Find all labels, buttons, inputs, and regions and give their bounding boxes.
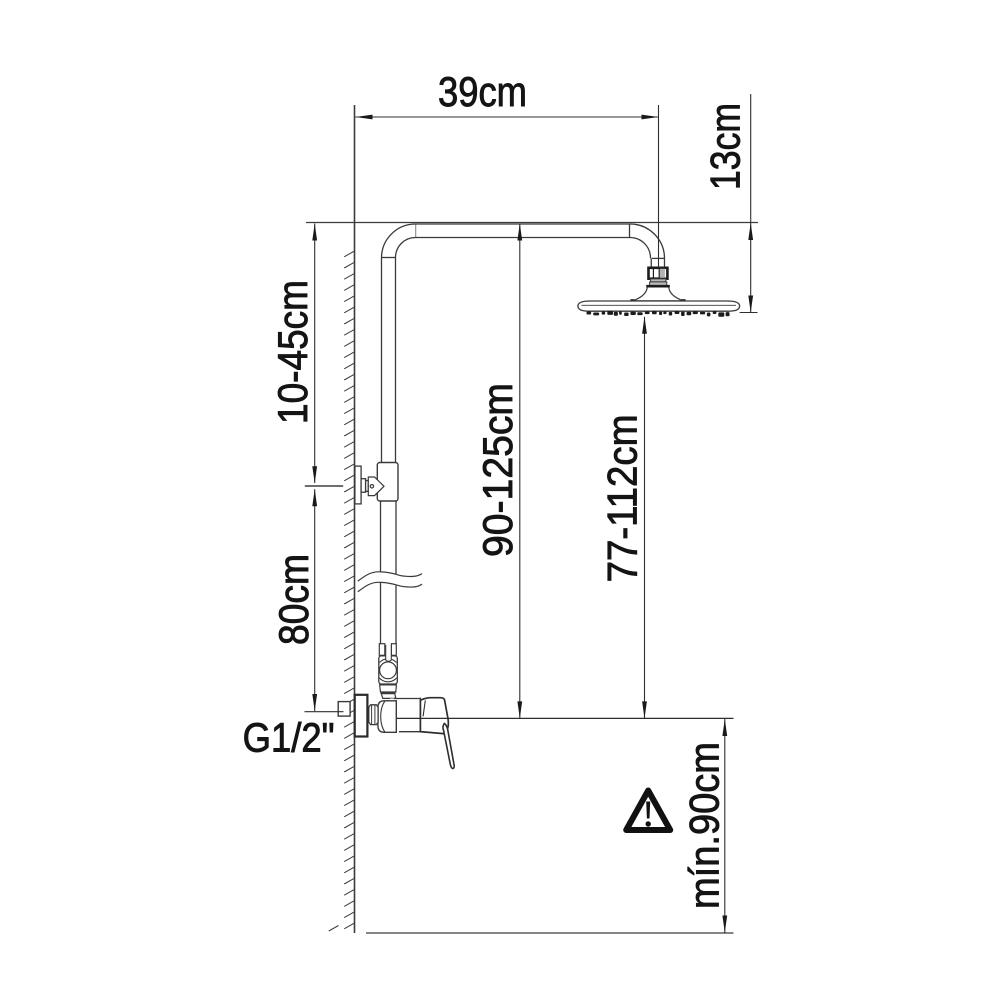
svg-text:mín.90cm: mín.90cm [681, 742, 728, 909]
svg-text:80cm: 80cm [270, 554, 317, 645]
svg-text:77-112cm: 77-112cm [598, 414, 645, 582]
svg-text:90-125cm: 90-125cm [474, 383, 521, 557]
svg-text:13cm: 13cm [702, 103, 749, 190]
svg-text:10-45cm: 10-45cm [269, 280, 316, 424]
svg-text:39cm: 39cm [438, 68, 527, 115]
svg-text:G1/2": G1/2" [243, 714, 335, 760]
